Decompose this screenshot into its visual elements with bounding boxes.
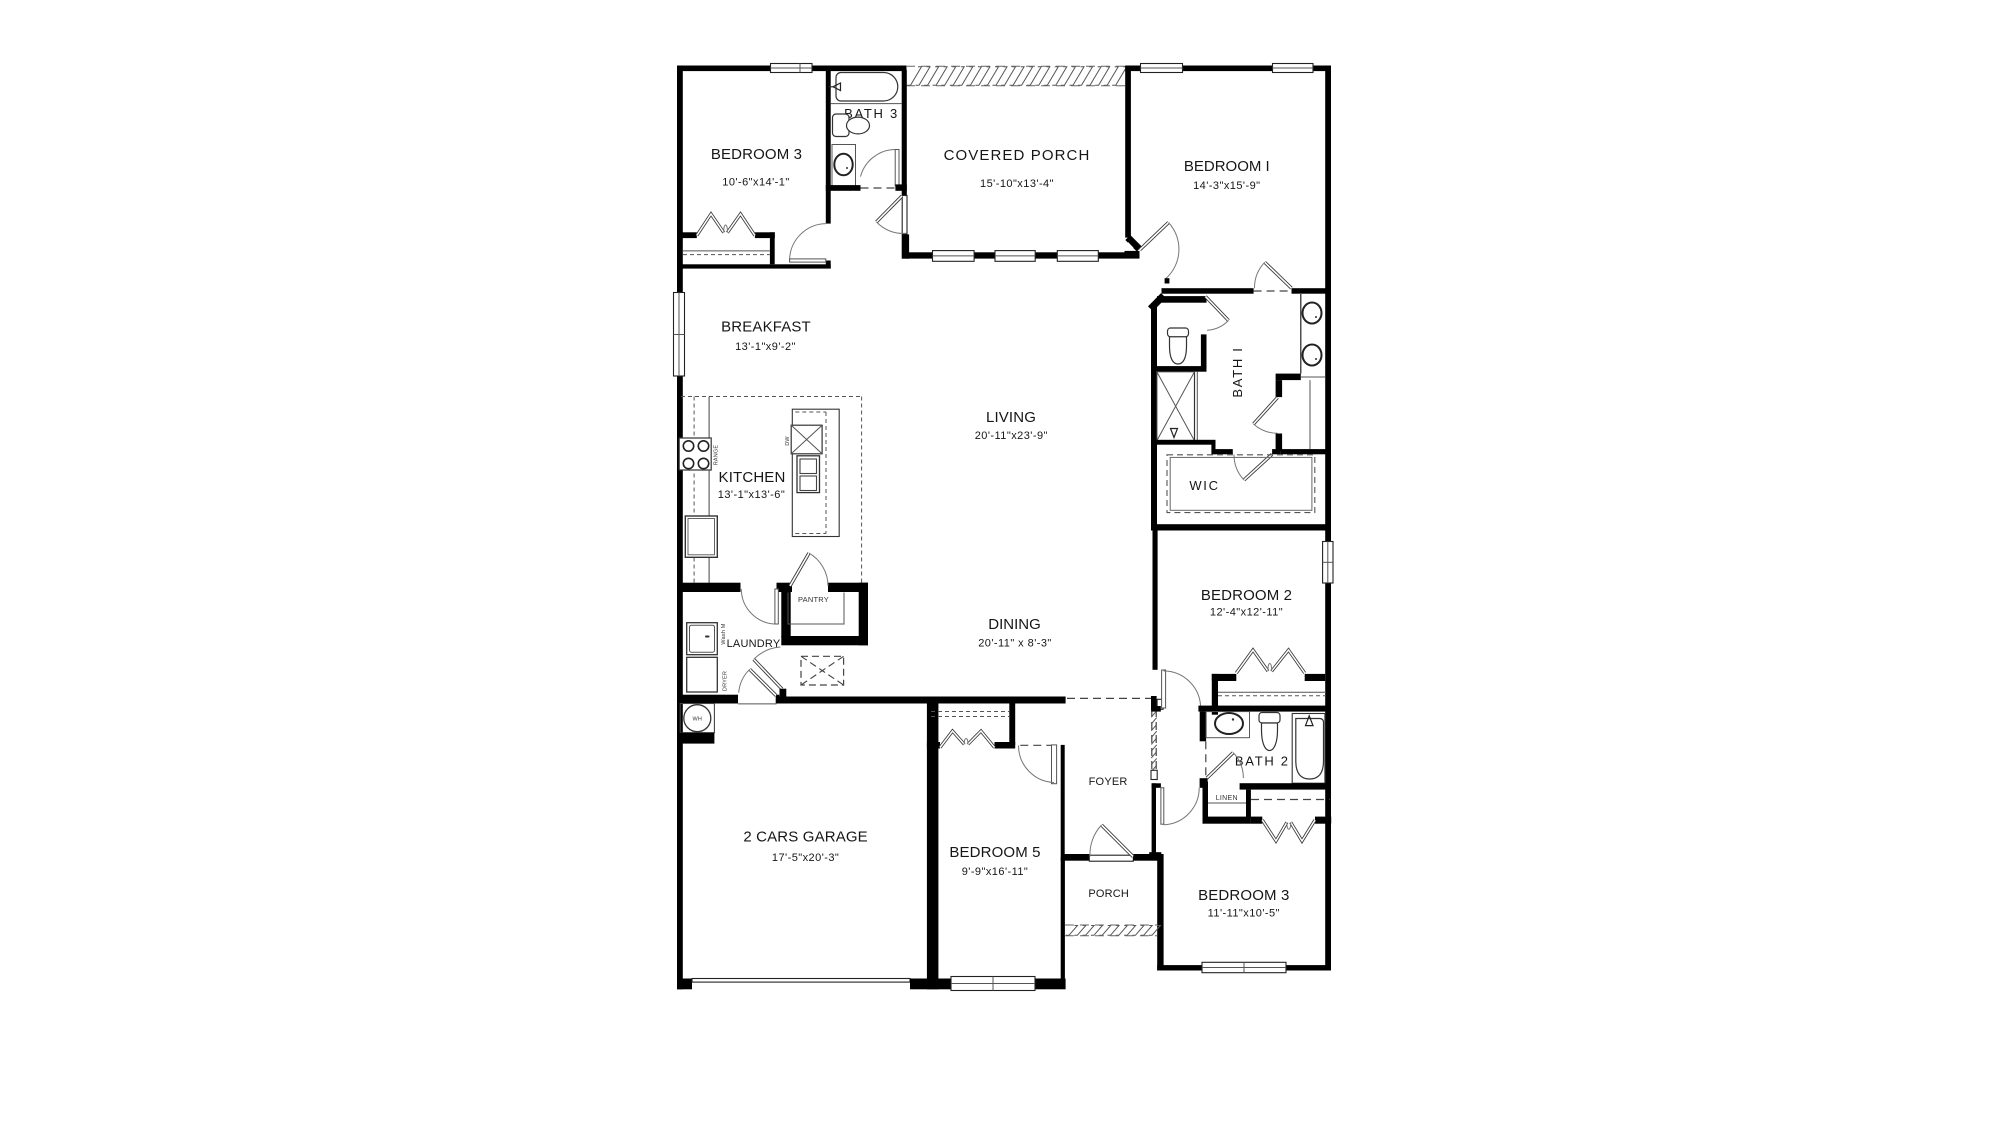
svg-text:11'-11"x10'-5": 11'-11"x10'-5" (1208, 908, 1280, 920)
svg-text:BATH 2: BATH 2 (1235, 754, 1290, 769)
svg-text:13'-1"x13'-6": 13'-1"x13'-6" (718, 489, 785, 501)
svg-text:WH: WH (693, 717, 703, 723)
svg-text:17'-5"x20'-3": 17'-5"x20'-3" (772, 852, 839, 864)
svg-text:LIVING: LIVING (986, 409, 1036, 426)
svg-text:Wash M: Wash M (721, 623, 727, 644)
svg-text:DINING: DINING (988, 616, 1041, 633)
svg-text:DW: DW (785, 436, 791, 446)
svg-text:10'-6"x14'-1": 10'-6"x14'-1" (722, 177, 789, 189)
svg-text:2 CARS GARAGE: 2 CARS GARAGE (743, 829, 867, 846)
svg-text:20'-11" x 8'-3": 20'-11" x 8'-3" (978, 638, 1052, 650)
svg-text:LINEN: LINEN (1216, 795, 1238, 802)
svg-text:BEDROOM 3: BEDROOM 3 (1198, 887, 1289, 904)
svg-text:13'-1"x9'-2": 13'-1"x9'-2" (735, 341, 796, 353)
svg-text:BATH I: BATH I (1230, 346, 1245, 397)
svg-text:9'-9"x16'-11": 9'-9"x16'-11" (962, 866, 1029, 878)
svg-text:WIC: WIC (1189, 478, 1219, 493)
svg-text:15'-10"x13'-4": 15'-10"x13'-4" (980, 178, 1054, 190)
svg-text:20'-11"x23'-9": 20'-11"x23'-9" (975, 430, 1048, 442)
svg-text:BEDROOM 3: BEDROOM 3 (711, 146, 802, 163)
svg-text:KITCHEN: KITCHEN (719, 469, 786, 486)
svg-text:BEDROOM I: BEDROOM I (1184, 158, 1270, 175)
svg-text:14'-3"x15'-9": 14'-3"x15'-9" (1193, 180, 1260, 192)
svg-text:RANGE: RANGE (714, 445, 720, 466)
svg-text:DRYER: DRYER (723, 671, 729, 691)
svg-text:PORCH: PORCH (1088, 888, 1129, 900)
svg-text:PANTRY: PANTRY (798, 595, 829, 604)
svg-text:BREAKFAST: BREAKFAST (721, 319, 811, 336)
svg-text:COVERED PORCH: COVERED PORCH (944, 147, 1091, 164)
svg-text:12'-4"x12'-11": 12'-4"x12'-11" (1210, 607, 1283, 619)
svg-text:BEDROOM 5: BEDROOM 5 (949, 844, 1040, 861)
svg-text:FOYER: FOYER (1089, 776, 1128, 788)
svg-text:BEDROOM 2: BEDROOM 2 (1201, 587, 1292, 604)
